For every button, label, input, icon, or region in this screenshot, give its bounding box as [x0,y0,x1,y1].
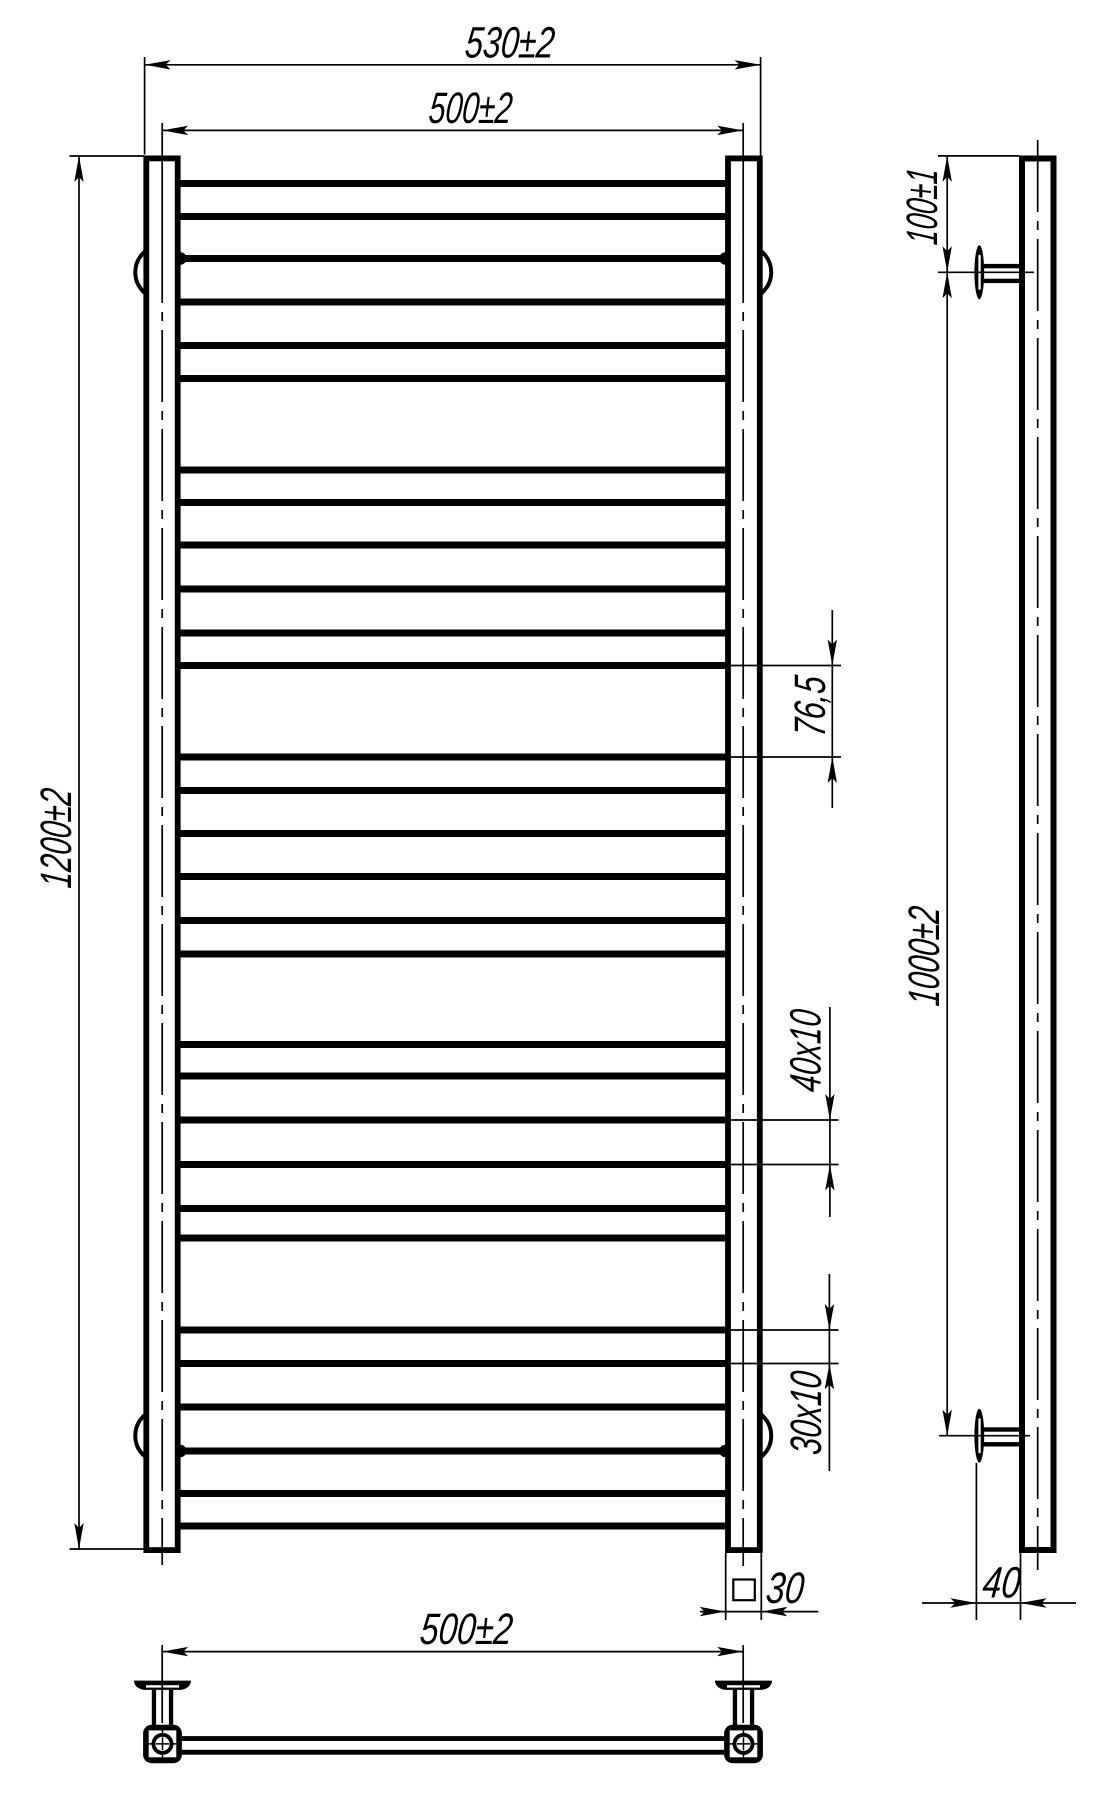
svg-text:500±2: 500±2 [418,1605,515,1654]
svg-text:100±1: 100±1 [898,166,947,247]
svg-text:40: 40 [980,1559,1023,1608]
svg-text:30: 30 [764,1564,807,1613]
svg-text:530±2: 530±2 [463,18,557,67]
svg-text:40x10: 40x10 [781,1007,830,1094]
svg-text:1000±2: 1000±2 [900,904,949,1008]
svg-text:500±2: 500±2 [427,84,515,133]
svg-text:1200±2: 1200±2 [32,786,81,890]
svg-text:30x10: 30x10 [782,1368,831,1456]
svg-text:76,5: 76,5 [786,673,835,738]
